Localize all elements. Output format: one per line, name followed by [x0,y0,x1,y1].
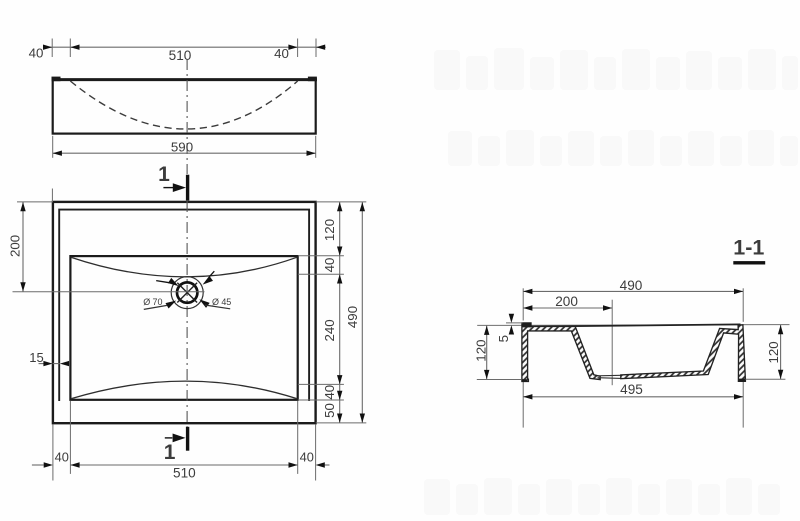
svg-text:120: 120 [322,219,337,241]
svg-text:40: 40 [322,258,337,273]
svg-text:495: 495 [620,382,643,397]
svg-text:490: 490 [620,278,643,293]
svg-text:1: 1 [158,163,170,186]
svg-text:490: 490 [345,306,360,328]
svg-text:Ø 45: Ø 45 [212,297,231,307]
svg-text:40: 40 [300,449,314,464]
svg-text:200: 200 [7,235,22,257]
svg-text:240: 240 [322,319,337,341]
svg-text:15: 15 [29,350,43,365]
svg-text:1: 1 [164,441,176,464]
svg-text:5: 5 [496,335,511,342]
svg-text:40: 40 [29,46,44,61]
svg-text:120: 120 [474,340,489,362]
svg-text:200: 200 [555,294,578,309]
svg-text:510: 510 [169,48,192,63]
svg-text:50: 50 [322,403,337,418]
svg-text:40: 40 [274,46,289,61]
svg-text:40: 40 [55,450,69,465]
svg-text:510: 510 [173,465,196,480]
svg-text:590: 590 [171,140,193,155]
svg-text:Ø 70: Ø 70 [143,297,162,307]
svg-text:1-1: 1-1 [733,236,764,260]
svg-text:40: 40 [322,385,337,400]
svg-text:120: 120 [766,341,781,363]
